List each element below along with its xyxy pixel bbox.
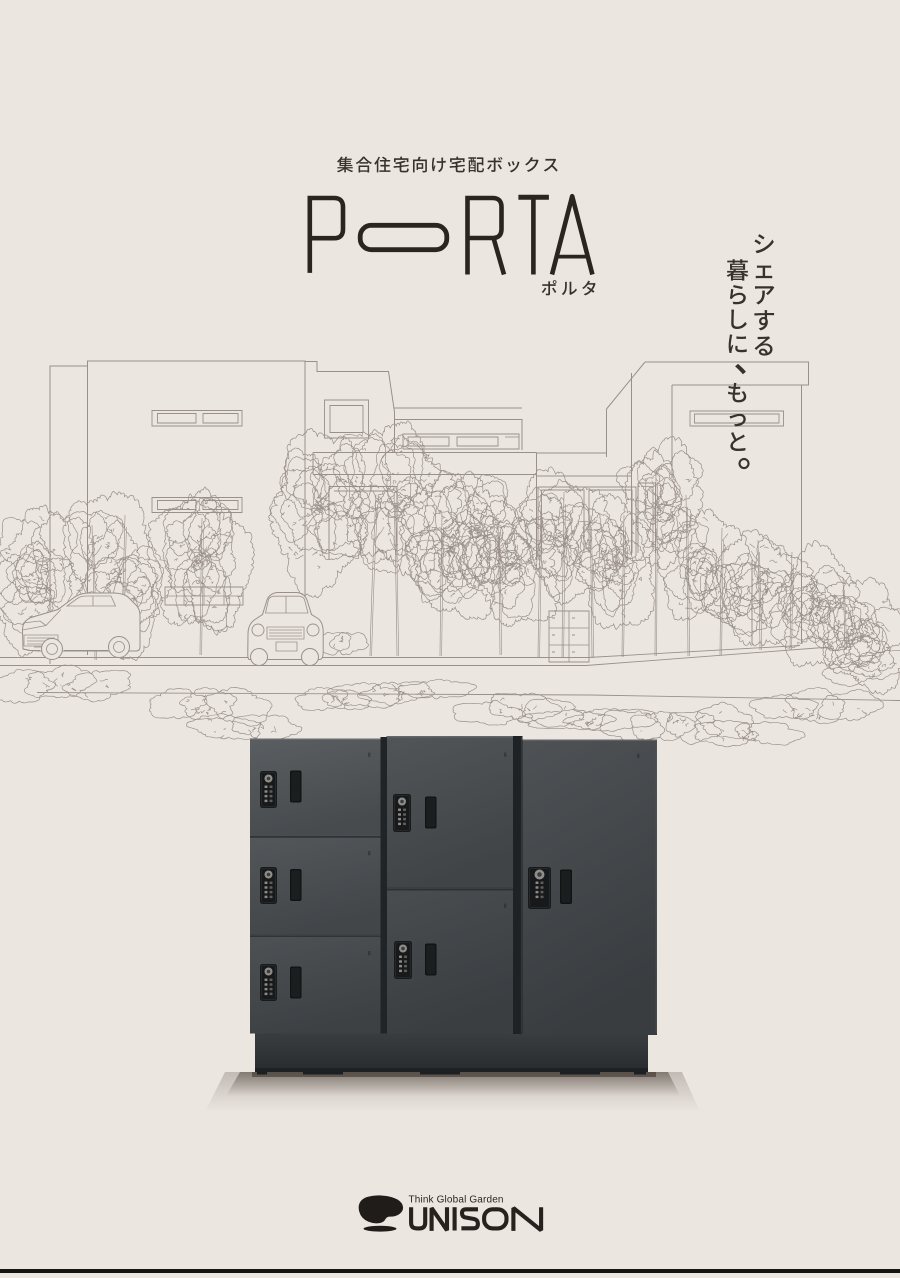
svg-text:Think Global Garden: Think Global Garden <box>409 1195 504 1206</box>
